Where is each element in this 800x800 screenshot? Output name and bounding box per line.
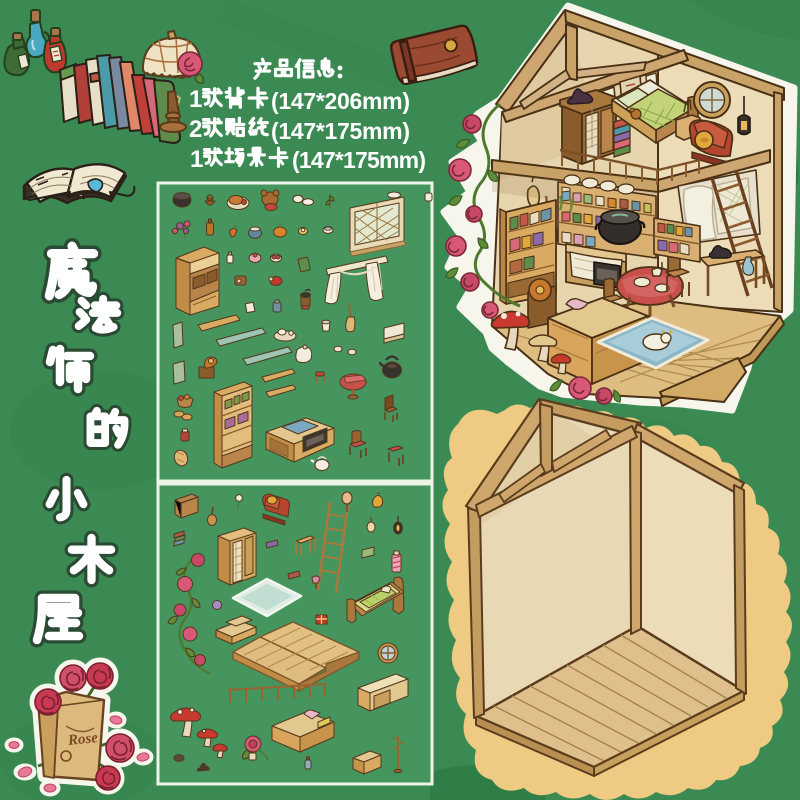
svg-text:1: 1 [189, 86, 202, 113]
svg-text:Rose: Rose [66, 730, 99, 749]
svg-text:(147*206mm): (147*206mm) [271, 88, 410, 114]
svg-text:2: 2 [189, 116, 202, 143]
svg-text:(147*175mm): (147*175mm) [271, 118, 410, 144]
svg-text:1: 1 [190, 146, 203, 173]
svg-text:(147*175mm): (147*175mm) [292, 147, 426, 173]
